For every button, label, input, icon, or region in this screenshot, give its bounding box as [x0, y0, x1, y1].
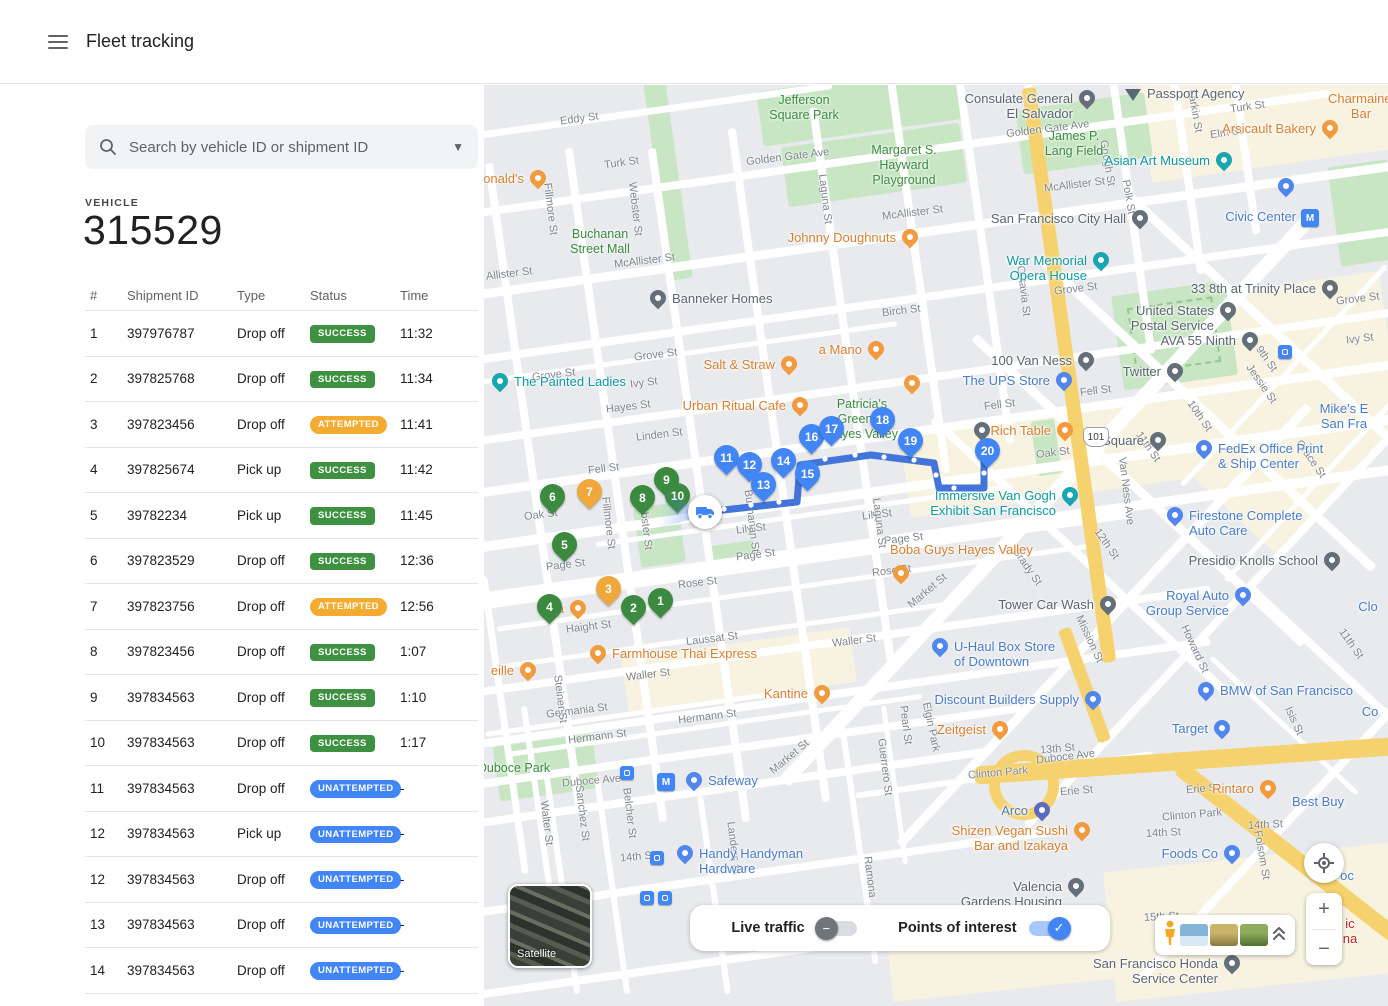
cell: 397823456	[127, 417, 237, 432]
transit-stop-icon[interactable]: M	[657, 773, 675, 791]
poi-label: Zeitgeist	[937, 723, 986, 738]
status-cell: SUCCESS	[310, 324, 400, 343]
time-cell: -	[400, 917, 478, 932]
status-badge: SUCCESS	[310, 553, 375, 571]
cell: Drop off	[237, 690, 310, 705]
street-label: Linden St	[635, 426, 683, 444]
cell: 13	[90, 917, 127, 932]
poi-label: Salt & Straw	[703, 358, 775, 373]
cell: 397825768	[127, 371, 237, 386]
cell: 397823756	[127, 599, 237, 614]
chevron-down-icon[interactable]: ▼	[452, 140, 464, 154]
cell: 397976787	[127, 326, 237, 341]
cell: 12	[90, 826, 127, 841]
street-label: 14th St	[1248, 818, 1283, 832]
cell: Drop off	[237, 917, 310, 932]
cell: Drop off	[237, 963, 310, 978]
table-row[interactable]: 12397834563Pick upUNATTEMPTED-	[85, 812, 478, 858]
cell: 397834563	[127, 917, 237, 932]
status-cell: ATTEMPTED	[310, 597, 400, 616]
status-cell: SUCCESS	[310, 552, 400, 571]
status-cell: SUCCESS	[310, 734, 400, 753]
cell: 397823456	[127, 644, 237, 659]
stop-marker-20[interactable]: 20	[970, 433, 1005, 468]
street-label: Isis St	[1282, 705, 1306, 737]
stop-marker-15[interactable]: 15	[790, 456, 825, 491]
cell: 6	[90, 553, 127, 568]
poi-label: The UPS Store	[963, 374, 1050, 389]
search-input[interactable]: Search by vehicle ID or shipment ID ▼	[85, 125, 478, 169]
stop-marker-19[interactable]: 19	[893, 423, 928, 458]
status-badge: SUCCESS	[310, 507, 375, 525]
time-cell: 11:34	[400, 371, 478, 386]
vehicle-id: 315529	[83, 207, 223, 254]
time-cell: -	[400, 872, 478, 887]
poi-label: Civic Center	[1225, 210, 1296, 225]
poi-label: Firestone Complete Auto Care	[1189, 509, 1302, 539]
stop-marker-1[interactable]: 1	[643, 583, 678, 618]
transit-stop-icon[interactable]	[650, 851, 664, 865]
points-of-interest-label: Points of interest	[898, 920, 1016, 936]
poi-label: Rintaro	[1212, 782, 1254, 797]
poi-label: Passport Agency	[1147, 87, 1245, 102]
street-label: 14th St	[1146, 826, 1181, 840]
poi-label: Foods Co	[1162, 847, 1218, 862]
cell: 10	[90, 735, 127, 750]
street-label: Pearl St	[897, 705, 914, 745]
status-cell: SUCCESS	[310, 506, 400, 525]
poi-label: Shizen Vegan Sushi Bar and Izakaya	[952, 824, 1068, 854]
poi-pin-icon	[1211, 717, 1234, 740]
cell: 3	[90, 417, 127, 432]
poi-label: Urban Ritual Cafe	[683, 399, 786, 414]
cell: Pick up	[237, 508, 310, 523]
poi-label: eille	[491, 664, 514, 679]
poi-label: Rich Table	[991, 424, 1051, 439]
cell: 8	[90, 644, 127, 659]
time-cell: 1:10	[400, 690, 478, 705]
live-traffic-label: Live traffic	[731, 920, 804, 936]
poi-pin-icon	[674, 842, 697, 865]
time-cell: 12:36	[400, 553, 478, 568]
thumbnail-field[interactable]	[1210, 924, 1238, 946]
cell: Drop off	[237, 781, 310, 796]
poi-label: United States Postal Service	[1131, 304, 1214, 334]
satellite-layer-button[interactable]: Satellite	[508, 884, 592, 968]
cell: 9	[90, 690, 127, 705]
live-traffic-toggle[interactable]: −	[817, 921, 857, 936]
poi-label: Asian Art Museum	[1105, 154, 1211, 169]
stop-marker-3[interactable]: 3	[591, 571, 626, 606]
fleet-tracking-app: Fleet tracking Search by vehicle ID or s…	[0, 0, 1388, 1006]
poi-pin-icon	[1321, 549, 1344, 572]
poi-label: Best Buy	[1258, 795, 1378, 810]
cell: 7	[90, 599, 127, 614]
poi-pin-icon	[647, 287, 670, 310]
status-cell: SUCCESS	[310, 688, 400, 707]
points-of-interest-toggle[interactable]: ✓	[1029, 921, 1069, 936]
cell: 12	[90, 872, 127, 887]
search-icon	[99, 138, 117, 156]
street-label: Belcher St	[620, 787, 638, 839]
status-cell: SUCCESS	[310, 461, 400, 480]
poi-label: Mike's E San Fra	[1284, 402, 1388, 432]
status-cell: UNATTEMPTED	[310, 870, 400, 889]
poi-label: Twitter	[1123, 365, 1161, 380]
poi-triangle-icon	[1125, 89, 1141, 101]
poi-label: onald's	[484, 172, 524, 187]
stop-marker-2[interactable]: 2	[616, 590, 651, 625]
poi-label: War Memorial Opera House	[1007, 254, 1087, 284]
table-row[interactable]: 9397834563Drop offSUCCESS1:10	[85, 675, 478, 721]
table-row[interactable]: 7397823756Drop offATTEMPTED12:56	[85, 584, 478, 630]
table-row[interactable]: 13397834563Drop offUNATTEMPTED-	[85, 903, 478, 949]
street-label: Eddy St	[559, 110, 599, 127]
stop-marker-5[interactable]: 5	[547, 527, 582, 562]
transit-stop-icon[interactable]	[658, 891, 672, 905]
poi-label: The Painted Ladies	[514, 375, 626, 390]
poi-label: U-Haul Box Store of Downtown	[954, 640, 1055, 670]
cell: 397823529	[127, 553, 237, 568]
cell: 11	[90, 781, 127, 796]
table-header: #Shipment IDTypeStatusTime	[85, 281, 478, 311]
status-cell: SUCCESS	[310, 370, 400, 389]
column-header: Status	[310, 288, 400, 303]
poi-label: Safeway	[708, 774, 758, 789]
poi-label: Royal Auto Group Service	[1146, 589, 1229, 619]
park-label: Jefferson Square Park	[754, 93, 854, 123]
time-cell: -	[400, 826, 478, 841]
time-cell: -	[400, 963, 478, 978]
transit-stop-icon[interactable]: M	[1301, 209, 1319, 227]
time-cell: 1:17	[400, 735, 478, 750]
poi-pin-icon	[865, 338, 888, 361]
map-street	[484, 576, 528, 874]
vehicle-marker-icon[interactable]	[688, 495, 722, 529]
poi-label: San Francisco City Hall	[991, 212, 1126, 227]
table-row[interactable]: 11397834563Drop offUNATTEMPTED-	[85, 766, 478, 812]
poi-label: Banneker Homes	[672, 292, 772, 307]
poi-label: Consulate General El Salvador	[965, 92, 1073, 122]
poi-label: Arsicault Bakery	[1222, 122, 1316, 137]
status-badge: SUCCESS	[310, 644, 375, 662]
poi-label: San Francisco Honda Service Center	[1093, 957, 1218, 987]
poi-label: Immersive Van Gogh Exhibit San Francisco	[930, 489, 1056, 519]
table-row[interactable]: 4397825674Pick upSUCCESS11:42	[85, 448, 478, 494]
imagery-carousel	[1155, 915, 1295, 955]
poi-label: 100 Van Ness	[991, 354, 1072, 369]
poi-label: Target	[1172, 722, 1208, 737]
status-badge: ATTEMPTED	[310, 598, 387, 616]
table-row[interactable]: 1397976787Drop offSUCCESS11:32	[85, 311, 478, 357]
table-row[interactable]: 14397834563Drop offUNATTEMPTED-	[85, 948, 478, 994]
cell: 397834563	[127, 872, 237, 887]
poi-label: Clo	[1308, 600, 1388, 615]
poi-label: Arco	[1001, 804, 1028, 819]
highway-101-shield: 101	[1083, 427, 1109, 447]
column-header: Time	[400, 288, 478, 303]
street-label: McAllister St	[1043, 175, 1105, 194]
poi-label: AVA 55 Ninth	[1161, 334, 1236, 349]
collapse-chevrons-icon[interactable]	[1271, 924, 1287, 947]
cell: 397834563	[127, 781, 237, 796]
poi-label: Tower Car Wash	[998, 598, 1094, 613]
zoom-control: +−	[1306, 893, 1342, 965]
transit-stop-icon[interactable]	[1278, 345, 1292, 359]
street-label: 11th St	[1336, 627, 1365, 662]
status-badge: SUCCESS	[310, 325, 375, 343]
cell: 397834563	[127, 735, 237, 750]
poi-label: Charmaine' Bar	[1301, 92, 1388, 122]
table-row[interactable]: 12397834563Drop offUNATTEMPTED-	[85, 857, 478, 903]
time-cell: 1:07	[400, 644, 478, 659]
poi-label: Farmhouse Thai Express	[612, 647, 757, 662]
status-cell: ATTEMPTED	[310, 415, 400, 434]
street-label: Ivy St	[629, 375, 658, 390]
transit-stop-icon[interactable]	[640, 891, 654, 905]
cell: Drop off	[237, 735, 310, 750]
cell: 1	[90, 326, 127, 341]
status-badge: UNATTEMPTED	[310, 826, 401, 844]
status-badge: SUCCESS	[310, 735, 375, 753]
status-badge: UNATTEMPTED	[310, 917, 401, 935]
stop-marker-4[interactable]: 4	[532, 589, 567, 624]
time-cell: 11:41	[400, 417, 478, 432]
poi-pin-icon	[1071, 819, 1094, 842]
stop-marker-7[interactable]: 7	[572, 474, 607, 509]
poi-pin-icon	[1065, 875, 1088, 898]
cell: Drop off	[237, 417, 310, 432]
time-cell: 12:56	[400, 599, 478, 614]
time-cell: 11:45	[400, 508, 478, 523]
zoom-in-button[interactable]: +	[1318, 899, 1330, 919]
table-row[interactable]: 3397823456Drop offATTEMPTED11:41	[85, 402, 478, 448]
poi-pin-icon	[929, 635, 952, 658]
status-badge: SUCCESS	[310, 462, 375, 480]
poi-label: Handy Handyman Hardware	[699, 847, 803, 877]
column-header: #	[90, 288, 127, 303]
status-badge: UNATTEMPTED	[310, 871, 401, 889]
status-badge: SUCCESS	[310, 371, 375, 389]
table-row[interactable]: 539782234Pick upSUCCESS11:45	[85, 493, 478, 539]
cell: 397834563	[127, 963, 237, 978]
status-badge: ATTEMPTED	[310, 416, 387, 434]
cell: Drop off	[237, 644, 310, 659]
cell: Pick up	[237, 826, 310, 841]
status-cell: UNATTEMPTED	[310, 779, 400, 798]
stop-marker-18[interactable]: 18	[865, 402, 900, 437]
poi-label: Presidio Knolls School	[1189, 554, 1318, 569]
cell: Drop off	[237, 371, 310, 386]
cell: 14	[90, 963, 127, 978]
poi-pin-icon	[489, 370, 512, 393]
poi-label: FedEx Office Print & Ship Center	[1218, 442, 1323, 472]
satellite-label: Satellite	[517, 948, 556, 960]
app-header: Fleet tracking	[0, 0, 1388, 84]
status-badge: SUCCESS	[310, 689, 375, 707]
table-row[interactable]: 8397823456Drop offSUCCESS1:07	[85, 630, 478, 676]
poi-label: Co	[1310, 705, 1388, 720]
poi-label: Boba Guys Hayes Valley	[890, 543, 1010, 558]
park-label: Duboce Park	[484, 761, 564, 776]
poi-pin-icon	[587, 642, 610, 665]
page-title: Fleet tracking	[86, 31, 194, 52]
column-header: Shipment ID	[127, 288, 237, 303]
transit-stop-icon[interactable]	[620, 766, 634, 780]
park-label: Buchanan Street Mall	[550, 227, 650, 257]
search-placeholder: Search by vehicle ID or shipment ID	[129, 139, 452, 156]
cell: Drop off	[237, 326, 310, 341]
street-label: Sanchez St	[573, 784, 592, 841]
thumbnail-hills[interactable]	[1240, 924, 1268, 946]
cell: 397825674	[127, 462, 237, 477]
street-label: Fell St	[983, 397, 1015, 413]
cell: Pick up	[237, 462, 310, 477]
status-cell: UNATTEMPTED	[310, 961, 400, 980]
park-label: Margaret S. Hayward Playground	[854, 143, 954, 188]
cell: 4	[90, 462, 127, 477]
shipments-table: #Shipment IDTypeStatusTime1397976787Drop…	[85, 281, 478, 994]
map-street	[1209, 655, 1359, 795]
status-badge: UNATTEMPTED	[310, 780, 401, 798]
poi-label: Kantine	[764, 687, 808, 702]
map-toggle-bar: Live traffic−Points of interest✓	[690, 905, 1110, 951]
street-label: Polk St	[1119, 179, 1137, 215]
poi-label: Johnny Doughnuts	[788, 231, 896, 246]
table-row[interactable]: 6397823529Drop offSUCCESS12:36	[85, 539, 478, 585]
cell: Drop off	[237, 872, 310, 887]
left-panel: Search by vehicle ID or shipment ID ▼ VE…	[0, 85, 484, 1006]
column-header: Type	[237, 288, 310, 303]
table-row[interactable]: 2397825768Drop offSUCCESS11:34	[85, 357, 478, 403]
status-cell: UNATTEMPTED	[310, 825, 400, 844]
my-location-button[interactable]	[1304, 843, 1344, 883]
status-cell: UNATTEMPTED	[310, 916, 400, 935]
cell: 397834563	[127, 690, 237, 705]
street-label: Fell St	[1079, 383, 1111, 399]
poi-label: BMW of San Francisco	[1220, 684, 1353, 699]
poi-label: 33 8th at Trinity Place	[1191, 282, 1316, 297]
time-cell: 11:32	[400, 326, 478, 341]
stop-marker-17[interactable]: 17	[814, 411, 849, 446]
street-label: Grove St	[633, 346, 678, 363]
zoom-out-button[interactable]: −	[1318, 939, 1330, 959]
poi-label: Discount Builders Supply	[934, 693, 1079, 708]
poi-label: a Mano	[819, 343, 862, 358]
street-label: Erie St	[1060, 784, 1094, 799]
poi-pin-icon	[778, 353, 801, 376]
street-label: Turk St	[603, 155, 639, 172]
status-cell: SUCCESS	[310, 643, 400, 662]
menu-icon[interactable]	[48, 35, 68, 49]
pegman-icon[interactable]	[1163, 920, 1177, 951]
cell: 397834563	[127, 826, 237, 841]
cell: Drop off	[237, 599, 310, 614]
thumbnail-sky[interactable]	[1180, 924, 1208, 946]
table-row[interactable]: 10397834563Drop offSUCCESS1:17	[85, 721, 478, 767]
cell: 39782234	[127, 508, 237, 523]
time-cell: 11:42	[400, 462, 478, 477]
stop-marker-6[interactable]: 6	[535, 479, 570, 514]
cell: 2	[90, 371, 127, 386]
status-badge: UNATTEMPTED	[310, 962, 401, 980]
street-label: Clinton Park	[1162, 806, 1223, 823]
map-canvas[interactable]: 101Eddy StTurk StTurk StElm StGolden Gat…	[484, 85, 1388, 1006]
time-cell: -	[400, 781, 478, 796]
cell: Drop off	[237, 553, 310, 568]
cell: 5	[90, 508, 127, 523]
